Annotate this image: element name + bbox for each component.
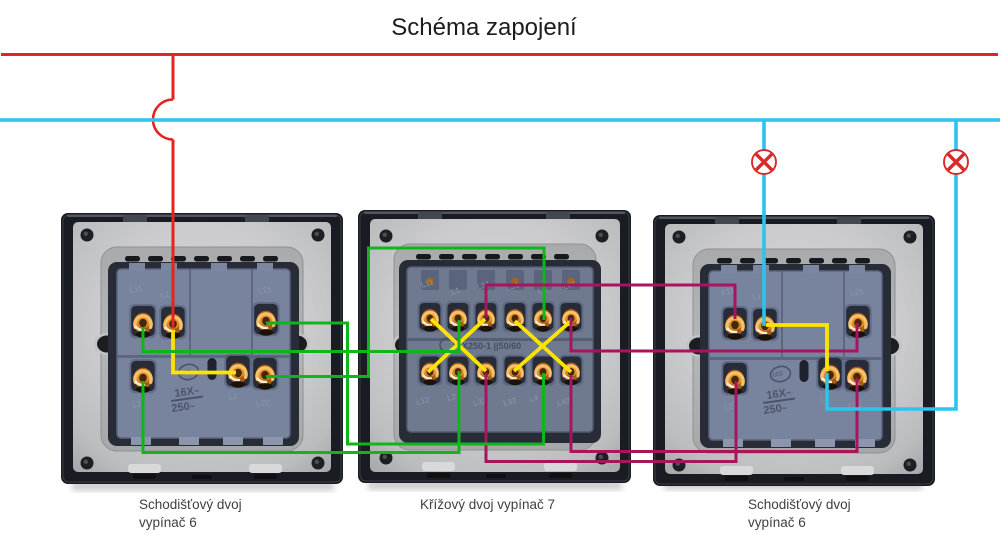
svg-text:X250-1 ||50/60: X250-1 ||50/60: [462, 341, 521, 351]
